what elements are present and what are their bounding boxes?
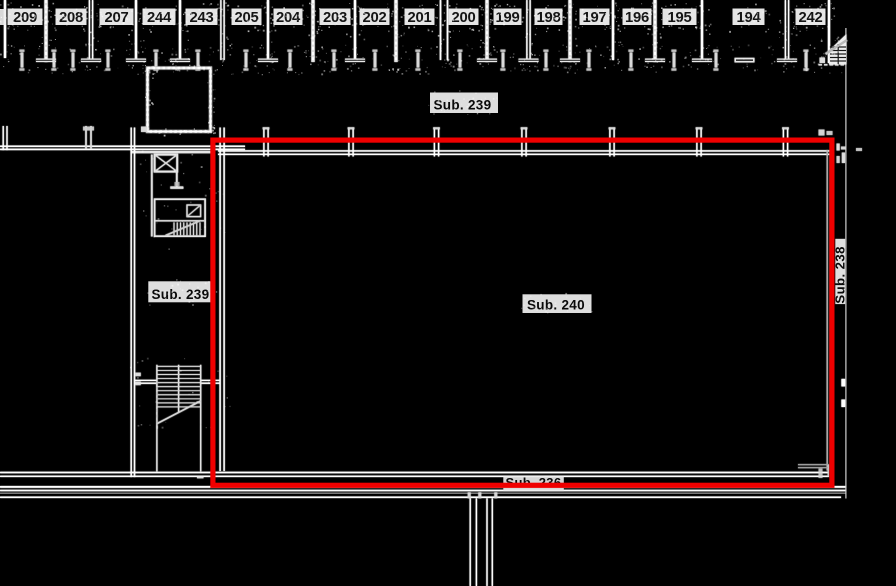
svg-text:209: 209 bbox=[13, 10, 37, 26]
svg-text:244: 244 bbox=[147, 10, 172, 26]
svg-text:195: 195 bbox=[667, 10, 691, 26]
svg-text:194: 194 bbox=[736, 10, 761, 26]
svg-text:201: 201 bbox=[407, 10, 431, 26]
svg-text:202: 202 bbox=[362, 10, 386, 26]
svg-text:Sub. 238: Sub. 238 bbox=[832, 246, 847, 303]
svg-text:205: 205 bbox=[234, 10, 258, 26]
svg-text:Sub. 240: Sub. 240 bbox=[527, 298, 585, 313]
svg-text:204: 204 bbox=[276, 10, 301, 26]
svg-text:207: 207 bbox=[104, 10, 128, 26]
svg-text:200: 200 bbox=[451, 10, 475, 26]
svg-text:243: 243 bbox=[189, 10, 213, 26]
svg-text:196: 196 bbox=[625, 10, 649, 26]
